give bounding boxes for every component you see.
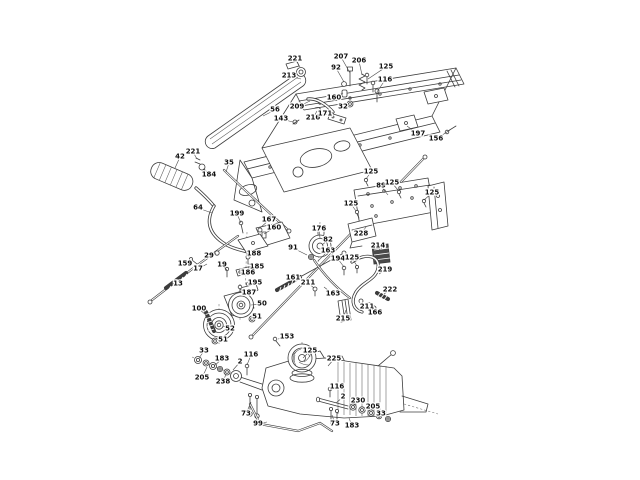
spacer-230 [350,404,356,410]
washer-92 [342,82,347,87]
part-number-label: 195 [248,279,263,287]
part-number-label: 17 [193,265,203,273]
part-number-label: 161 [286,274,301,282]
part-number-label: 33 [199,347,209,355]
part-number-label: 160 [267,224,282,232]
part-number-label: 197 [411,130,426,138]
part-number-label: 125 [345,254,360,262]
part-number-label: 225 [327,355,342,363]
part-number-label: 171 [318,110,333,118]
part-number-label: 213 [282,72,297,80]
bolt-199 [241,224,243,233]
part-number-label: 207 [334,53,349,61]
part-number-label: 194 [331,255,346,263]
part-number-label: 199 [230,210,245,218]
spacer-160 [342,90,347,97]
part-number-label: 214 [371,242,386,250]
part-number-label: 166 [368,309,383,317]
part-number-label: 221 [288,55,303,63]
part-number-label: 2 [238,358,243,366]
part-number-label: 222 [383,286,398,294]
washer [359,407,365,413]
part-number-label: 32 [338,103,348,111]
part-number-label: 73 [241,410,251,418]
washer-33a [195,357,202,364]
bolt-159 [192,260,197,264]
part-number-label: 29 [204,252,214,260]
pedal-grip-42 [148,160,195,193]
part-number-label: 228 [354,230,369,238]
part-number-label: 33 [376,410,386,418]
part-number-label: 183 [215,355,230,363]
washer-205a [203,360,209,366]
part-number-label: 211 [301,279,316,287]
part-number-label: 13 [173,280,183,288]
part-number-label: 116 [244,351,259,359]
part-number-label: 19 [217,261,227,269]
part-number-label: 163 [326,290,341,298]
part-number-label: 100 [192,305,207,313]
part-number-label: 163 [321,247,336,255]
part-number-label: 99 [253,420,263,428]
part-number-label: 56 [270,106,280,114]
part-number-label: 188 [247,250,262,258]
exploded-parts-diagram: 2212132079220612511616032209561432161711… [0,0,640,480]
bolt-153 [273,337,277,341]
cap-213 [297,68,306,77]
part-number-label: 92 [331,64,341,72]
shift-lever [391,351,396,356]
part-number-label: 209 [290,103,305,111]
part-number-label: 167 [262,216,277,224]
part-number-label: 187 [242,289,257,297]
part-number-label: 52 [225,325,235,333]
washer-238 [217,366,222,371]
part-number-label: 2 [341,393,346,401]
clip-221b [195,158,200,164]
part-number-label: 221 [186,148,201,156]
part-number-label: 51 [252,313,262,321]
part-number-label: 160 [327,94,342,102]
part-number-label: 73 [330,420,340,428]
part-number-label: 125 [344,200,359,208]
part-number-label: 156 [429,135,444,143]
part-number-label: 82 [323,236,333,244]
hub [231,371,242,382]
washer-183a [210,363,217,370]
part-number-label: 116 [378,76,393,84]
part-number-label: 116 [330,383,345,391]
locknut-91 [308,254,313,259]
washer [224,369,230,375]
drive-belt [205,73,306,148]
part-number-label: 125 [385,179,400,187]
part-number-label: 125 [379,63,394,71]
part-number-label: 35 [224,159,234,167]
part-number-label: 125 [425,189,440,197]
part-number-label: 125 [364,168,379,176]
part-number-label: 125 [303,347,318,355]
part-number-label: 50 [257,300,267,308]
part-number-label: 42 [175,153,185,161]
part-number-label: 159 [178,260,193,268]
part-number-label: 186 [241,269,256,277]
part-number-label: 206 [352,57,367,65]
part-number-label: 51 [218,336,228,344]
part-number-label: 153 [280,333,295,341]
parts-diagram-page: 2212132079220612511616032209561432161711… [0,0,640,480]
part-number-label: 184 [202,171,217,179]
spacer-205b [368,410,374,416]
part-number-label: 176 [312,225,327,233]
part-number-label: 230 [351,397,366,405]
washer-183b [385,416,390,421]
part-number-label: 205 [195,374,210,382]
part-number-label: 91 [288,244,298,252]
part-number-label: 238 [216,378,231,386]
part-number-label: 183 [345,422,360,430]
part-number-label: 219 [378,266,393,274]
part-number-label: 143 [274,115,289,123]
part-number-label: 64 [193,204,203,212]
part-number-label: 215 [336,315,351,323]
